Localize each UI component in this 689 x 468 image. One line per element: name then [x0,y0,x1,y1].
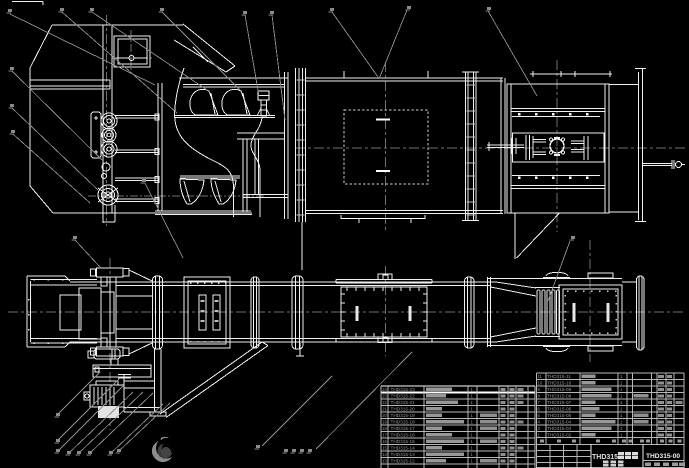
svg-text:THD315-21: THD315-21 [391,400,416,405]
svg-text:THD315-07: THD315-07 [547,400,572,405]
svg-text:24: 24 [382,387,387,392]
svg-text:THD315-22: THD315-22 [391,394,416,399]
svg-text:THD315-18: THD315-18 [391,420,416,425]
svg-text:THD315-20: THD315-20 [391,407,416,412]
svg-text:22: 22 [382,400,387,405]
svg-text:THD315-11: THD315-11 [547,374,571,379]
svg-text:THD315-06: THD315-06 [547,407,572,412]
svg-text:THD315-03: THD315-03 [547,426,572,431]
svg-text:THD315-02: THD315-02 [547,433,572,438]
svg-text:THD315-05: THD315-05 [547,413,572,418]
svg-text:13: 13 [382,459,387,464]
svg-text:19: 19 [382,420,387,425]
svg-text:THD315-00: THD315-00 [646,453,680,460]
svg-text:16: 16 [382,439,387,444]
svg-text:THD315: THD315 [592,454,618,461]
svg-text:THD315-13: THD315-13 [391,452,416,457]
svg-text:THD315-15: THD315-15 [391,439,416,444]
svg-text:THD315-17: THD315-17 [391,426,416,431]
svg-text:THD315-10: THD315-10 [547,381,572,386]
svg-text:20: 20 [382,413,387,418]
svg-text:THD315-23: THD315-23 [391,387,416,392]
svg-text:23: 23 [382,394,387,399]
svg-text:15: 15 [382,446,387,451]
svg-text:THD315-14: THD315-14 [391,446,416,451]
svg-text:10: 10 [538,381,543,386]
svg-text:THD315-04: THD315-04 [547,420,572,425]
svg-text:THD315-09: THD315-09 [547,387,572,392]
svg-text:THD315-19: THD315-19 [391,413,416,418]
svg-text:THD315-08: THD315-08 [547,394,572,399]
svg-text:THD315-16: THD315-16 [391,433,416,438]
svg-text:17: 17 [382,433,387,438]
svg-text:21: 21 [382,407,387,412]
svg-text:11: 11 [538,374,543,379]
svg-text:THD315-12: THD315-12 [391,459,416,464]
svg-text:18: 18 [382,426,387,431]
svg-text:14: 14 [382,452,387,457]
